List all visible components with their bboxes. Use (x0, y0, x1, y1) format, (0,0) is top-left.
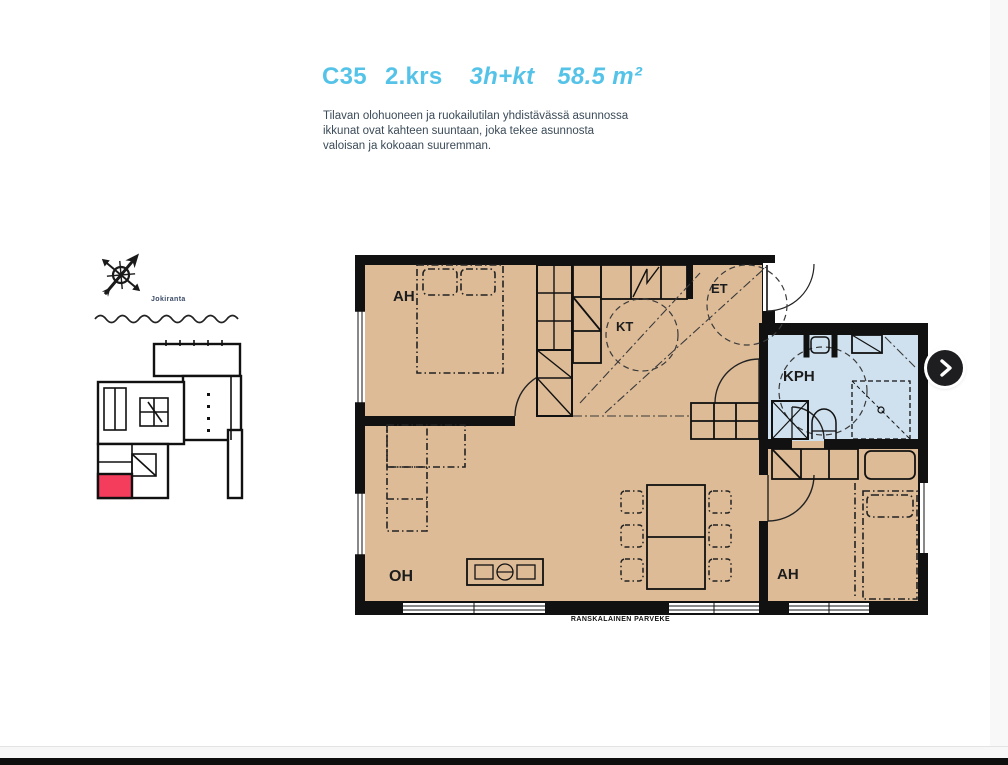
apartment-description: Tilavan olohuoneen ja ruokailutilan yhdi… (323, 109, 628, 154)
room-label-kitchen: KT (616, 319, 633, 334)
apartment-number: C35 (322, 63, 367, 91)
room-label-bedroom2: AH (777, 566, 799, 583)
floor-plan: AH KT ET KPH OH AH (355, 253, 935, 628)
river-label: Jokiranta (151, 296, 186, 303)
water-wave-icon (92, 310, 250, 326)
apartment-area: 58.5 m² (557, 63, 642, 91)
bottom-status-bar (0, 746, 1008, 758)
room-label-bedroom1: AH (393, 288, 415, 305)
apartment-floor: 2.krs (385, 63, 443, 91)
room-label-bathroom: KPH (783, 368, 815, 385)
description-line: Tilavan olohuoneen ja ruokailutilan yhdi… (323, 109, 628, 124)
apartment-brochure-page: C35 2.krs 3h+kt 58.5 m² Tilavan olohuone… (0, 0, 1008, 765)
compass-icon (94, 245, 152, 307)
room-label-living: OH (389, 568, 413, 585)
bottom-black-bar (0, 758, 1008, 765)
chevron-right-icon (927, 350, 963, 386)
room-label-entry: ET (711, 281, 728, 296)
building-key-plan (88, 338, 254, 504)
description-line: valoisan ja kokoaan suuremman. (323, 139, 628, 154)
apartment-layout: 3h+kt (470, 63, 535, 91)
description-line: ikkunat ovat kahteen suuntaan, joka teke… (323, 124, 628, 139)
apartment-title: C35 2.krs 3h+kt 58.5 m² (322, 63, 642, 91)
highlighted-unit (98, 474, 132, 498)
french-balcony-label: RANSKALAINEN PARVEKE (538, 616, 703, 623)
next-button[interactable] (927, 350, 963, 386)
page-edge-strip (990, 0, 1008, 765)
